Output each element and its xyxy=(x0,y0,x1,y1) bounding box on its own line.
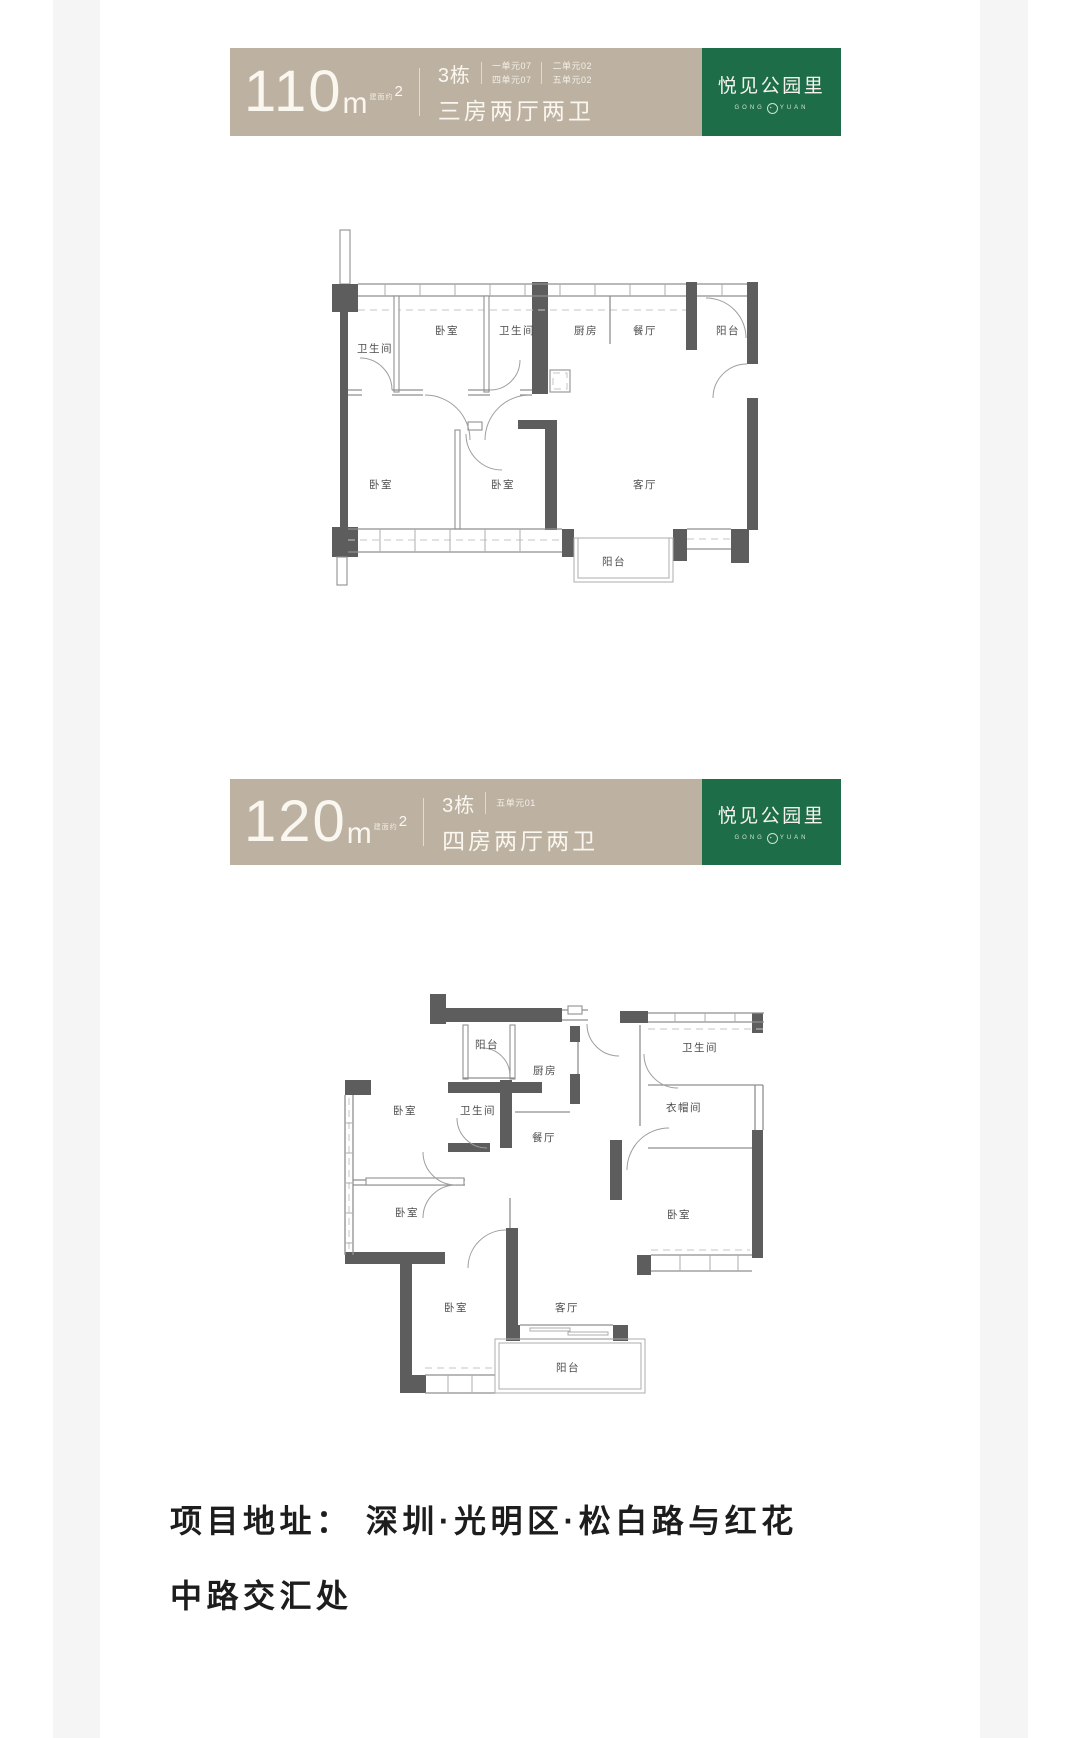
room-label-balcony-top: 阳台 xyxy=(475,1038,499,1051)
building-label: 3栋 xyxy=(442,789,475,818)
room-label-bathroom-mid: 卫生间 xyxy=(460,1104,496,1117)
divider xyxy=(419,68,420,116)
banner-110-left: 110 m 建面约 2 3栋 一单元07 四单元07 xyxy=(230,48,702,136)
banner-120: 120 m 建面约 2 3栋 五单元01 四房两厅两卫 xyxy=(230,779,841,865)
floorplan-110: 卫生间 卧室 卫生间 厨房 餐厅 阳台 卧室 卧室 客厅 阳台 xyxy=(290,222,760,592)
unit-entry: 一单元07 xyxy=(492,60,532,72)
right-margin-strip xyxy=(980,0,1028,1738)
room-label-dining: 餐厅 xyxy=(532,1131,556,1144)
room-label-balcony-bottom: 阳台 xyxy=(602,555,626,568)
area-unit: m xyxy=(342,89,367,119)
room-label-kitchen: 厨房 xyxy=(533,1064,557,1077)
layout-name: 四房两厅两卫 xyxy=(442,822,598,856)
left-margin-strip xyxy=(53,0,100,1738)
building-label: 3栋 xyxy=(438,59,471,88)
unit-entry: 五单元02 xyxy=(552,74,592,86)
unit-list: 一单元07 四单元07 二单元02 五单元02 xyxy=(492,60,592,85)
room-label-bedroom-tl: 卧室 xyxy=(393,1104,417,1117)
area-sup: 2 xyxy=(399,814,407,829)
area-note: 建面约 xyxy=(374,824,398,831)
brand-sub-left: GONG xyxy=(734,835,764,841)
room-label-bathroom-tr: 卫生间 xyxy=(682,1041,718,1054)
brand-name: 悦见公园里 xyxy=(718,71,826,98)
divider xyxy=(423,798,424,846)
room-label-bedroom-bl: 卧室 xyxy=(444,1301,468,1314)
room-label-living: 客厅 xyxy=(633,478,657,491)
room-label-balcony-bottom: 阳台 xyxy=(556,1361,580,1374)
room-label-balcony-right: 阳台 xyxy=(716,324,740,337)
area-number: 110 xyxy=(244,63,342,121)
page: 110 m 建面约 2 3栋 一单元07 四单元07 xyxy=(0,0,1080,1738)
brand-logo: 悦见公园里 GONG ⬩ YUAN xyxy=(702,48,841,136)
brand-circle-mark: ⬩ xyxy=(767,103,778,114)
banner-110-info: 3栋 一单元07 四单元07 二单元02 五单元02 三房 xyxy=(438,59,594,126)
unit-entry: 五单元01 xyxy=(496,797,536,809)
room-label-bathroom-1: 卫生间 xyxy=(357,342,393,355)
room-label-bedroom-1: 卧室 xyxy=(435,324,459,337)
wall-column xyxy=(340,230,350,284)
room-label-kitchen: 厨房 xyxy=(574,324,598,337)
room-label-bathroom-2: 卫生间 xyxy=(499,324,535,337)
room-label-dining: 餐厅 xyxy=(633,324,657,337)
room-label-living: 客厅 xyxy=(555,1301,579,1314)
floorplan-120: 阳台 厨房 卫生间 卧室 卫生间 餐厅 衣帽间 卧室 卧室 卧室 客厅 阳台 xyxy=(330,898,770,1398)
divider xyxy=(541,62,542,84)
banner-120-info: 3栋 五单元01 四房两厅两卫 xyxy=(442,789,598,856)
unit-entry: 四单元07 xyxy=(492,74,532,86)
area-110: 110 m 建面约 2 xyxy=(244,63,403,121)
brand-subtitle: GONG ⬩ YUAN xyxy=(734,103,808,114)
divider xyxy=(481,62,482,84)
brand-subtitle: GONG ⬩ YUAN xyxy=(734,833,808,844)
room-label-bedroom-3: 卧室 xyxy=(491,478,515,491)
room-label-bedroom-2: 卧室 xyxy=(369,478,393,491)
brand-circle-mark: ⬩ xyxy=(767,833,778,844)
unit-list: 五单元01 xyxy=(496,797,536,809)
brand-sub-right: YUAN xyxy=(780,105,809,111)
address-line-2: 中路交汇处 xyxy=(170,1580,353,1612)
area-unit: m xyxy=(347,819,372,849)
address-line-1: 项目地址： 深圳·光明区·松白路与红花 xyxy=(170,1505,798,1537)
banner-110: 110 m 建面约 2 3栋 一单元07 四单元07 xyxy=(230,48,841,136)
divider xyxy=(485,792,486,814)
area-sup: 2 xyxy=(394,84,402,99)
area-120: 120 m 建面约 2 xyxy=(244,793,407,851)
banner-120-left: 120 m 建面约 2 3栋 五单元01 四房两厅两卫 xyxy=(230,779,702,865)
unit-entry: 二单元02 xyxy=(552,60,592,72)
brand-name: 悦见公园里 xyxy=(718,801,826,828)
room-label-wardrobe: 衣帽间 xyxy=(666,1101,702,1114)
brand-logo: 悦见公园里 GONG ⬩ YUAN xyxy=(702,779,841,865)
room-label-bedroom-right: 卧室 xyxy=(667,1208,691,1221)
brand-sub-left: GONG xyxy=(734,105,764,111)
area-number: 120 xyxy=(244,793,347,851)
layout-name: 三房两厅两卫 xyxy=(438,92,594,126)
brand-sub-right: YUAN xyxy=(780,835,809,841)
room-label-bedroom-ml: 卧室 xyxy=(395,1206,419,1219)
area-note: 建面约 xyxy=(369,94,393,101)
